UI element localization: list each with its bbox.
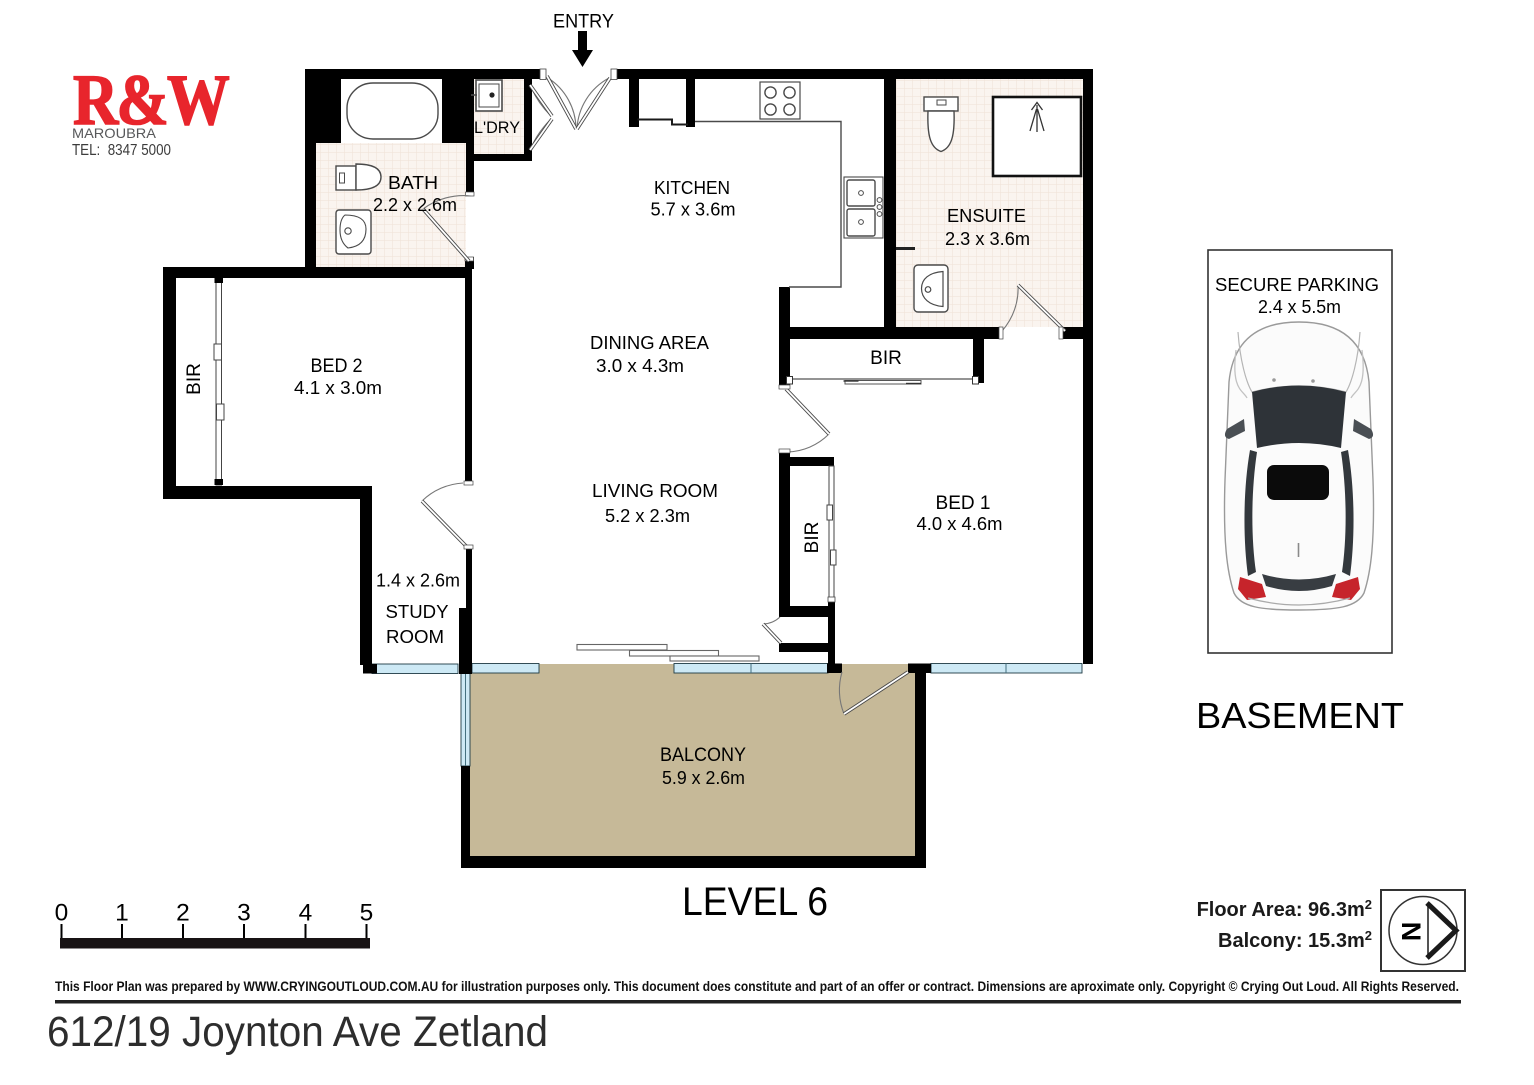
- svg-text:612/19 Joynton Ave Zetland: 612/19 Joynton Ave Zetland: [47, 1009, 548, 1056]
- svg-text:BED 2: BED 2: [311, 356, 363, 377]
- svg-text:LIVING ROOM: LIVING ROOM: [592, 480, 718, 501]
- svg-text:5.9 x 2.6m: 5.9 x 2.6m: [662, 767, 745, 788]
- svg-text:5.7 x 3.6m: 5.7 x 3.6m: [651, 200, 736, 220]
- svg-text:BED 1: BED 1: [936, 493, 991, 514]
- svg-text:MAROUBRA: MAROUBRA: [72, 125, 157, 141]
- svg-text:STUDY: STUDY: [386, 601, 449, 622]
- svg-text:BIR: BIR: [870, 348, 902, 369]
- svg-text:This Floor Plan was prepared b: This Floor Plan was prepared by WWW.CRYI…: [55, 979, 1459, 995]
- svg-text:N: N: [1396, 922, 1426, 942]
- svg-text:3: 3: [237, 900, 251, 927]
- svg-text:2.2 x 2.6m: 2.2 x 2.6m: [373, 195, 457, 215]
- svg-text:Floor Area: 96.3m2: Floor Area: 96.3m2: [1197, 897, 1372, 921]
- svg-text:4: 4: [299, 900, 313, 927]
- svg-text:2.3 x 3.6m: 2.3 x 3.6m: [945, 229, 1030, 249]
- svg-text:ROOM: ROOM: [386, 626, 444, 647]
- svg-text:Balcony: 15.3m2: Balcony: 15.3m2: [1218, 928, 1372, 952]
- svg-text:1: 1: [115, 900, 129, 927]
- svg-text:L'DRY: L'DRY: [474, 118, 520, 137]
- svg-text:SECURE PARKING: SECURE PARKING: [1215, 274, 1379, 295]
- svg-text:TEL: 8347 5000: TEL: 8347 5000: [72, 142, 171, 159]
- svg-text:2: 2: [176, 900, 190, 927]
- svg-text:BIR: BIR: [802, 522, 823, 554]
- svg-text:BATH: BATH: [388, 172, 438, 193]
- svg-text:4.0 x 4.6m: 4.0 x 4.6m: [917, 513, 1003, 534]
- svg-text:0: 0: [55, 900, 69, 927]
- svg-text:BASEMENT: BASEMENT: [1196, 695, 1404, 736]
- svg-text:KITCHEN: KITCHEN: [654, 177, 730, 198]
- svg-text:LEVEL 6: LEVEL 6: [682, 880, 828, 924]
- svg-text:BALCONY: BALCONY: [660, 745, 746, 766]
- svg-text:5: 5: [360, 900, 374, 927]
- svg-text:DINING AREA: DINING AREA: [590, 332, 710, 353]
- svg-text:3.0 x 4.3m: 3.0 x 4.3m: [596, 356, 684, 376]
- svg-text:4.1 x 3.0m: 4.1 x 3.0m: [294, 377, 382, 398]
- svg-text:2.4 x 5.5m: 2.4 x 5.5m: [1258, 297, 1341, 317]
- svg-text:ENSUITE: ENSUITE: [947, 205, 1026, 226]
- svg-text:1.4 x 2.6m: 1.4 x 2.6m: [376, 570, 460, 591]
- svg-text:5.2 x 2.3m: 5.2 x 2.3m: [605, 506, 690, 526]
- svg-text:BIR: BIR: [184, 363, 205, 395]
- svg-text:ENTRY: ENTRY: [553, 11, 614, 33]
